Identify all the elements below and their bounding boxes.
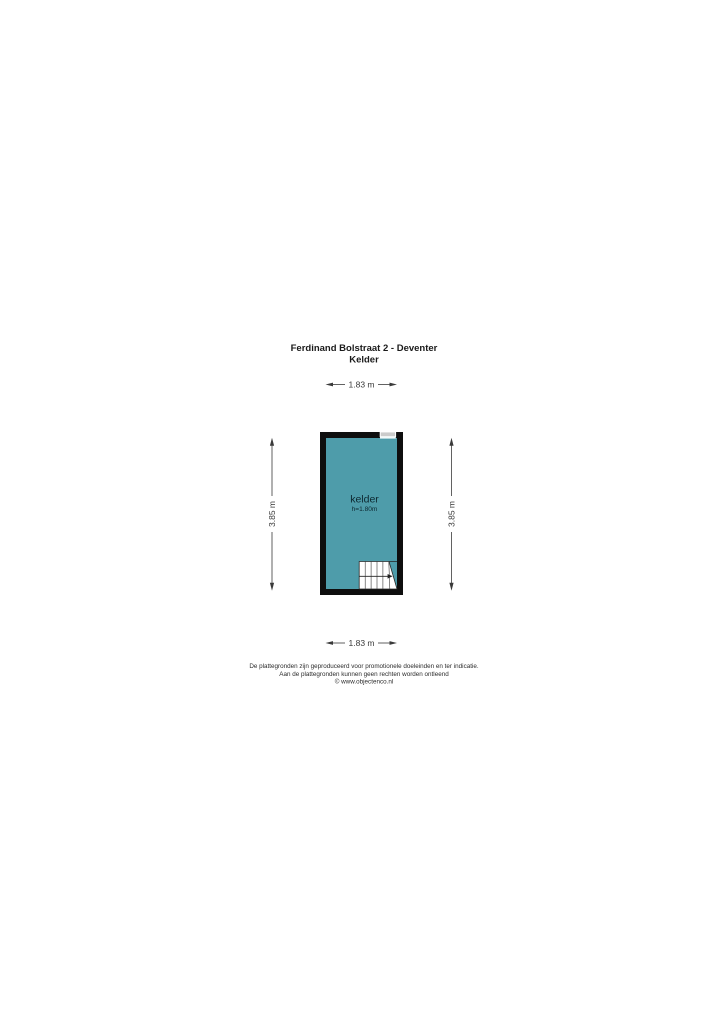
svg-text:1.83 m: 1.83 m bbox=[349, 380, 375, 390]
svg-text:kelder: kelder bbox=[350, 494, 379, 506]
svg-text:3.85 m: 3.85 m bbox=[267, 501, 277, 527]
svg-text:Kelder: Kelder bbox=[349, 355, 379, 366]
svg-text:3.85 m: 3.85 m bbox=[447, 501, 457, 527]
svg-text:Ferdinand Bolstraat 2 - Devent: Ferdinand Bolstraat 2 - Deventer bbox=[291, 343, 438, 354]
svg-text:1.83 m: 1.83 m bbox=[349, 638, 375, 648]
svg-text:h=1.80m: h=1.80m bbox=[352, 506, 378, 513]
svg-text:© www.objectenco.nl: © www.objectenco.nl bbox=[335, 678, 394, 686]
svg-text:De plattegronden zijn geproduc: De plattegronden zijn geproduceerd voor … bbox=[249, 663, 479, 670]
svg-text:Aan de plattegronden kunnen ge: Aan de plattegronden kunnen geen rechten… bbox=[279, 671, 449, 678]
